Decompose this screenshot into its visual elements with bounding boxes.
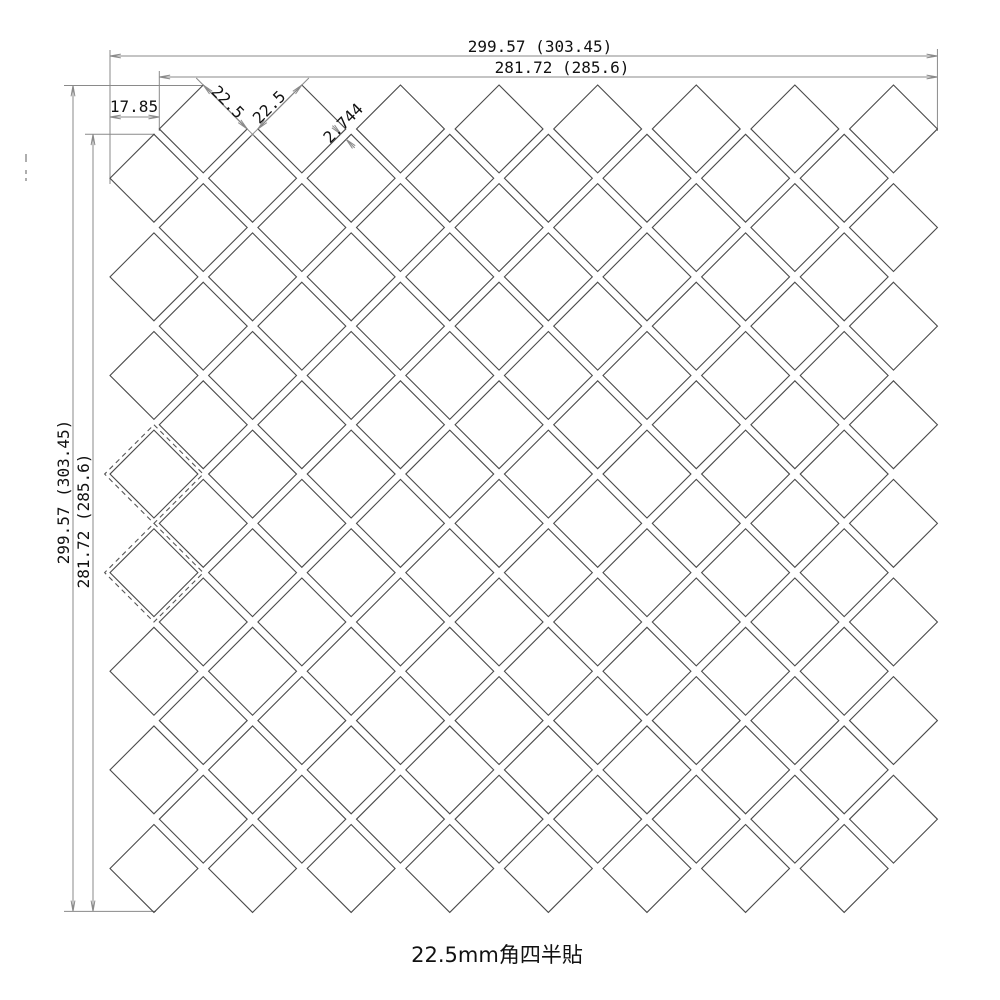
tile-diamond bbox=[406, 726, 494, 814]
tile-diamond bbox=[850, 775, 938, 863]
tile-diamond bbox=[357, 578, 445, 666]
tile-diamond bbox=[702, 627, 790, 715]
arrowhead bbox=[238, 123, 247, 129]
tile-diamond bbox=[751, 578, 839, 666]
tile-diamond bbox=[110, 726, 198, 814]
tile-diamond bbox=[307, 825, 395, 913]
tile-diamond bbox=[110, 627, 198, 715]
tile-diamond bbox=[258, 184, 346, 272]
tile-diamond bbox=[850, 85, 938, 173]
tile-diamond bbox=[406, 134, 494, 222]
tile-diamond bbox=[504, 627, 592, 715]
tile-diamond bbox=[357, 381, 445, 469]
tile-diamond bbox=[406, 430, 494, 518]
tile-diamond bbox=[307, 627, 395, 715]
tile-diamond bbox=[258, 775, 346, 863]
tile-diamond bbox=[159, 578, 247, 666]
arrowhead bbox=[293, 85, 302, 91]
tile-diamond bbox=[258, 381, 346, 469]
tile-diamond bbox=[455, 381, 543, 469]
tile-diamond bbox=[554, 184, 642, 272]
tile-diamond bbox=[159, 677, 247, 765]
tile-diamond bbox=[751, 184, 839, 272]
tile-diamond bbox=[850, 578, 938, 666]
tile-diamond bbox=[702, 825, 790, 913]
tile-diamond bbox=[702, 430, 790, 518]
tile-diamond bbox=[159, 282, 247, 370]
dim-label-tile-edge-b: 22.5 bbox=[249, 87, 290, 128]
tile-sheet-drawing: 299.57 (303.45) 281.72 (285.6) 299.57 (3… bbox=[0, 0, 1000, 1000]
dim-label-joint: 2.744 bbox=[319, 99, 366, 146]
dim-tail bbox=[251, 129, 258, 136]
tile-diamond bbox=[307, 134, 395, 222]
tile-diamond bbox=[307, 430, 395, 518]
tile-diamond bbox=[751, 85, 839, 173]
tile-diamond bbox=[554, 578, 642, 666]
tile-diamond bbox=[455, 85, 543, 173]
tile-diamond bbox=[603, 233, 691, 321]
arrowhead bbox=[346, 139, 355, 145]
dim-tail bbox=[247, 129, 254, 136]
tile-diamond bbox=[406, 825, 494, 913]
joint-module-outline bbox=[105, 523, 204, 622]
arrowhead bbox=[241, 120, 247, 129]
tile-diamond bbox=[307, 332, 395, 420]
tile-diamond bbox=[406, 332, 494, 420]
tile-diamond bbox=[652, 282, 740, 370]
tile-diamond bbox=[554, 677, 642, 765]
tile-diamond bbox=[751, 282, 839, 370]
tile-diamond bbox=[603, 332, 691, 420]
tile-diamond bbox=[357, 184, 445, 272]
tile-diamond bbox=[652, 85, 740, 173]
tile-diamond bbox=[504, 726, 592, 814]
tile-diamond bbox=[455, 578, 543, 666]
tile-diamond bbox=[209, 825, 297, 913]
tile-diamond bbox=[850, 282, 938, 370]
tile-diamond bbox=[850, 381, 938, 469]
tile-diamond bbox=[850, 677, 938, 765]
dim-label-top-inner: 281.72 (285.6) bbox=[495, 58, 630, 77]
drawing-title: 22.5mm角四半貼 bbox=[411, 943, 583, 967]
tile-diamond bbox=[800, 430, 888, 518]
dimension-lines bbox=[71, 54, 937, 911]
dim-label-tile-edge-a: 22.5 bbox=[208, 82, 249, 123]
tile-diamond bbox=[110, 825, 198, 913]
tile-diamond bbox=[702, 332, 790, 420]
tile-diamond bbox=[357, 479, 445, 567]
tile-diamond bbox=[258, 479, 346, 567]
dim-tail bbox=[302, 78, 309, 85]
tile-diamond bbox=[800, 134, 888, 222]
tile-diamond bbox=[110, 233, 198, 321]
tile-diamond bbox=[800, 233, 888, 321]
tile-diamond bbox=[652, 381, 740, 469]
tile-diamond bbox=[455, 775, 543, 863]
tile-diamond bbox=[357, 85, 445, 173]
tile-diamond bbox=[209, 726, 297, 814]
tile-diamond bbox=[850, 184, 938, 272]
tile-diamond bbox=[209, 627, 297, 715]
tile-diamond bbox=[652, 479, 740, 567]
tile-diamond bbox=[554, 282, 642, 370]
tile-diamond bbox=[209, 529, 297, 617]
tile-diamond bbox=[159, 479, 247, 567]
tile-diamond bbox=[307, 726, 395, 814]
tile-diamond bbox=[209, 233, 297, 321]
tile-diamond bbox=[159, 775, 247, 863]
dim-label-left-outer: 299.57 (303.45) bbox=[54, 420, 73, 565]
arrowhead bbox=[203, 85, 212, 91]
tile-diamond bbox=[406, 529, 494, 617]
tile-diamond bbox=[554, 85, 642, 173]
tile-diamond bbox=[110, 529, 198, 617]
tile-diamond bbox=[652, 775, 740, 863]
tile-diamond bbox=[307, 233, 395, 321]
dim-label-left-inner: 281.72 (285.6) bbox=[74, 454, 93, 589]
tile-diamond bbox=[258, 282, 346, 370]
arrowhead bbox=[346, 139, 352, 148]
arrowhead bbox=[203, 85, 209, 94]
dim-label-corner-offset: 17.85 bbox=[110, 97, 158, 116]
tile-diamond bbox=[455, 282, 543, 370]
tile-diamond bbox=[258, 677, 346, 765]
tile-diamond bbox=[110, 134, 198, 222]
tile-diamond bbox=[307, 529, 395, 617]
tile-diamond bbox=[554, 775, 642, 863]
tile-diamond bbox=[800, 726, 888, 814]
dim-label-top-outer: 299.57 (303.45) bbox=[468, 37, 613, 56]
tile-diamond bbox=[406, 627, 494, 715]
joint-module-outline bbox=[105, 425, 204, 524]
tile-diamond bbox=[702, 529, 790, 617]
tile-diamond bbox=[357, 677, 445, 765]
tile-diamond bbox=[751, 381, 839, 469]
tile-diamond bbox=[110, 332, 198, 420]
tile-diamond bbox=[357, 775, 445, 863]
tile-diamond bbox=[504, 233, 592, 321]
tile-diamond bbox=[800, 825, 888, 913]
tile-pattern bbox=[110, 85, 937, 912]
tile-diamond bbox=[603, 430, 691, 518]
dim-tail bbox=[196, 78, 203, 85]
tile-diamond bbox=[751, 775, 839, 863]
tile-diamond bbox=[455, 677, 543, 765]
tile-diamond bbox=[800, 627, 888, 715]
tile-diamond bbox=[603, 726, 691, 814]
tile-diamond bbox=[110, 430, 198, 518]
tile-diamond bbox=[702, 134, 790, 222]
arrowhead bbox=[296, 85, 302, 94]
tile-diamond bbox=[800, 332, 888, 420]
tile-diamond bbox=[702, 726, 790, 814]
tile-diamond bbox=[554, 479, 642, 567]
tile-diamond bbox=[209, 332, 297, 420]
tile-diamond bbox=[504, 134, 592, 222]
tile-diamond bbox=[406, 233, 494, 321]
tile-diamond bbox=[455, 184, 543, 272]
tile-diamond bbox=[209, 134, 297, 222]
tile-diamond bbox=[159, 184, 247, 272]
tile-diamond bbox=[652, 677, 740, 765]
tile-diamond bbox=[603, 825, 691, 913]
tile-diamond bbox=[603, 134, 691, 222]
tile-diamond bbox=[209, 430, 297, 518]
tile-diamond bbox=[652, 184, 740, 272]
tile-diamond bbox=[504, 825, 592, 913]
tile-diamond bbox=[603, 529, 691, 617]
tile-diamond bbox=[357, 282, 445, 370]
tile-diamond bbox=[159, 381, 247, 469]
tile-diamond bbox=[652, 578, 740, 666]
tile-diamond bbox=[702, 233, 790, 321]
tile-diamond bbox=[850, 479, 938, 567]
tile-diamond bbox=[751, 479, 839, 567]
tile-diamond bbox=[504, 332, 592, 420]
tile-diamond bbox=[504, 430, 592, 518]
tile-diamond bbox=[800, 529, 888, 617]
tile-diamond bbox=[554, 381, 642, 469]
tile-diamond bbox=[258, 578, 346, 666]
tile-diamond bbox=[455, 479, 543, 567]
tile-diamond bbox=[603, 627, 691, 715]
tile-diamond bbox=[751, 677, 839, 765]
tile-diamond bbox=[504, 529, 592, 617]
